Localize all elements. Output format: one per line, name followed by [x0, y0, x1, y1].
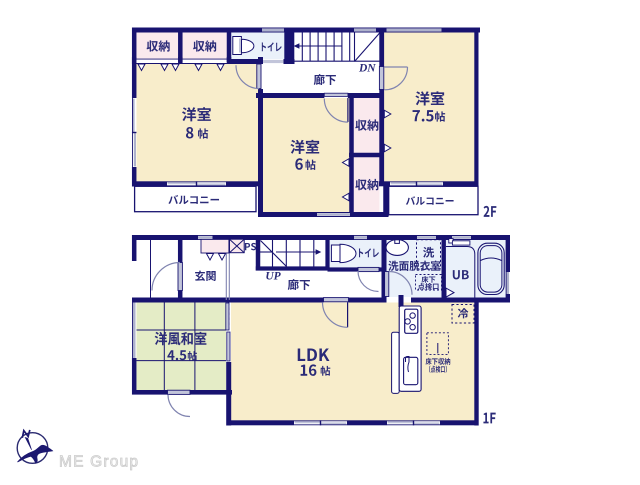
svg-text:UP: UP: [265, 270, 281, 282]
svg-text:ME Group: ME Group: [59, 454, 139, 471]
svg-text:DN: DN: [358, 62, 376, 74]
